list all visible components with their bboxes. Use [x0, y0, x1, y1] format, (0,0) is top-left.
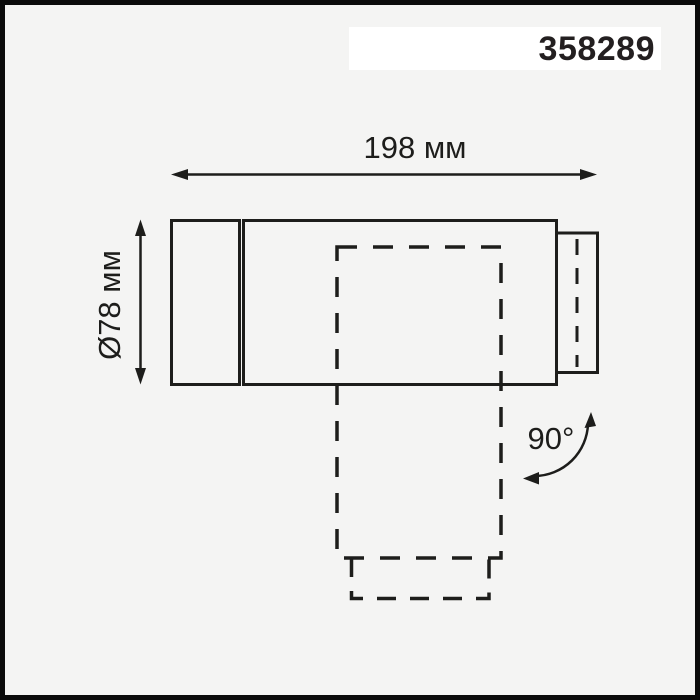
article-number-badge: 358289 [349, 27, 661, 70]
diameter-arrow-up-icon [135, 220, 146, 237]
fixture-left-cap [172, 221, 240, 385]
rotation-arrow-left-icon [523, 472, 539, 485]
fixture-side-view [172, 221, 598, 385]
fixture-rotated-phantom [337, 247, 501, 599]
length-dimension: 198 мм [171, 130, 597, 180]
diameter-dimension: Ø78 мм [92, 220, 146, 385]
rotation-angle-label: 90° [528, 421, 575, 456]
rotation-arrow-up-icon [585, 412, 597, 428]
diameter-dimension-label: Ø78 мм [92, 250, 127, 360]
length-arrow-left-icon [171, 169, 188, 180]
drawing-canvas: 358289 198 мм Ø78 мм [0, 0, 700, 700]
length-arrow-right-icon [580, 169, 597, 180]
rotation-indicator: 90° [523, 412, 596, 485]
length-dimension-label: 198 мм [364, 130, 467, 165]
fixture-body [244, 221, 557, 385]
rotated-cap-dashed [352, 558, 490, 599]
rotated-body-dashed [337, 247, 501, 558]
technical-drawing: 198 мм Ø78 мм 90° [0, 0, 700, 700]
article-number: 358289 [539, 32, 661, 66]
diameter-arrow-down-icon [135, 368, 146, 385]
